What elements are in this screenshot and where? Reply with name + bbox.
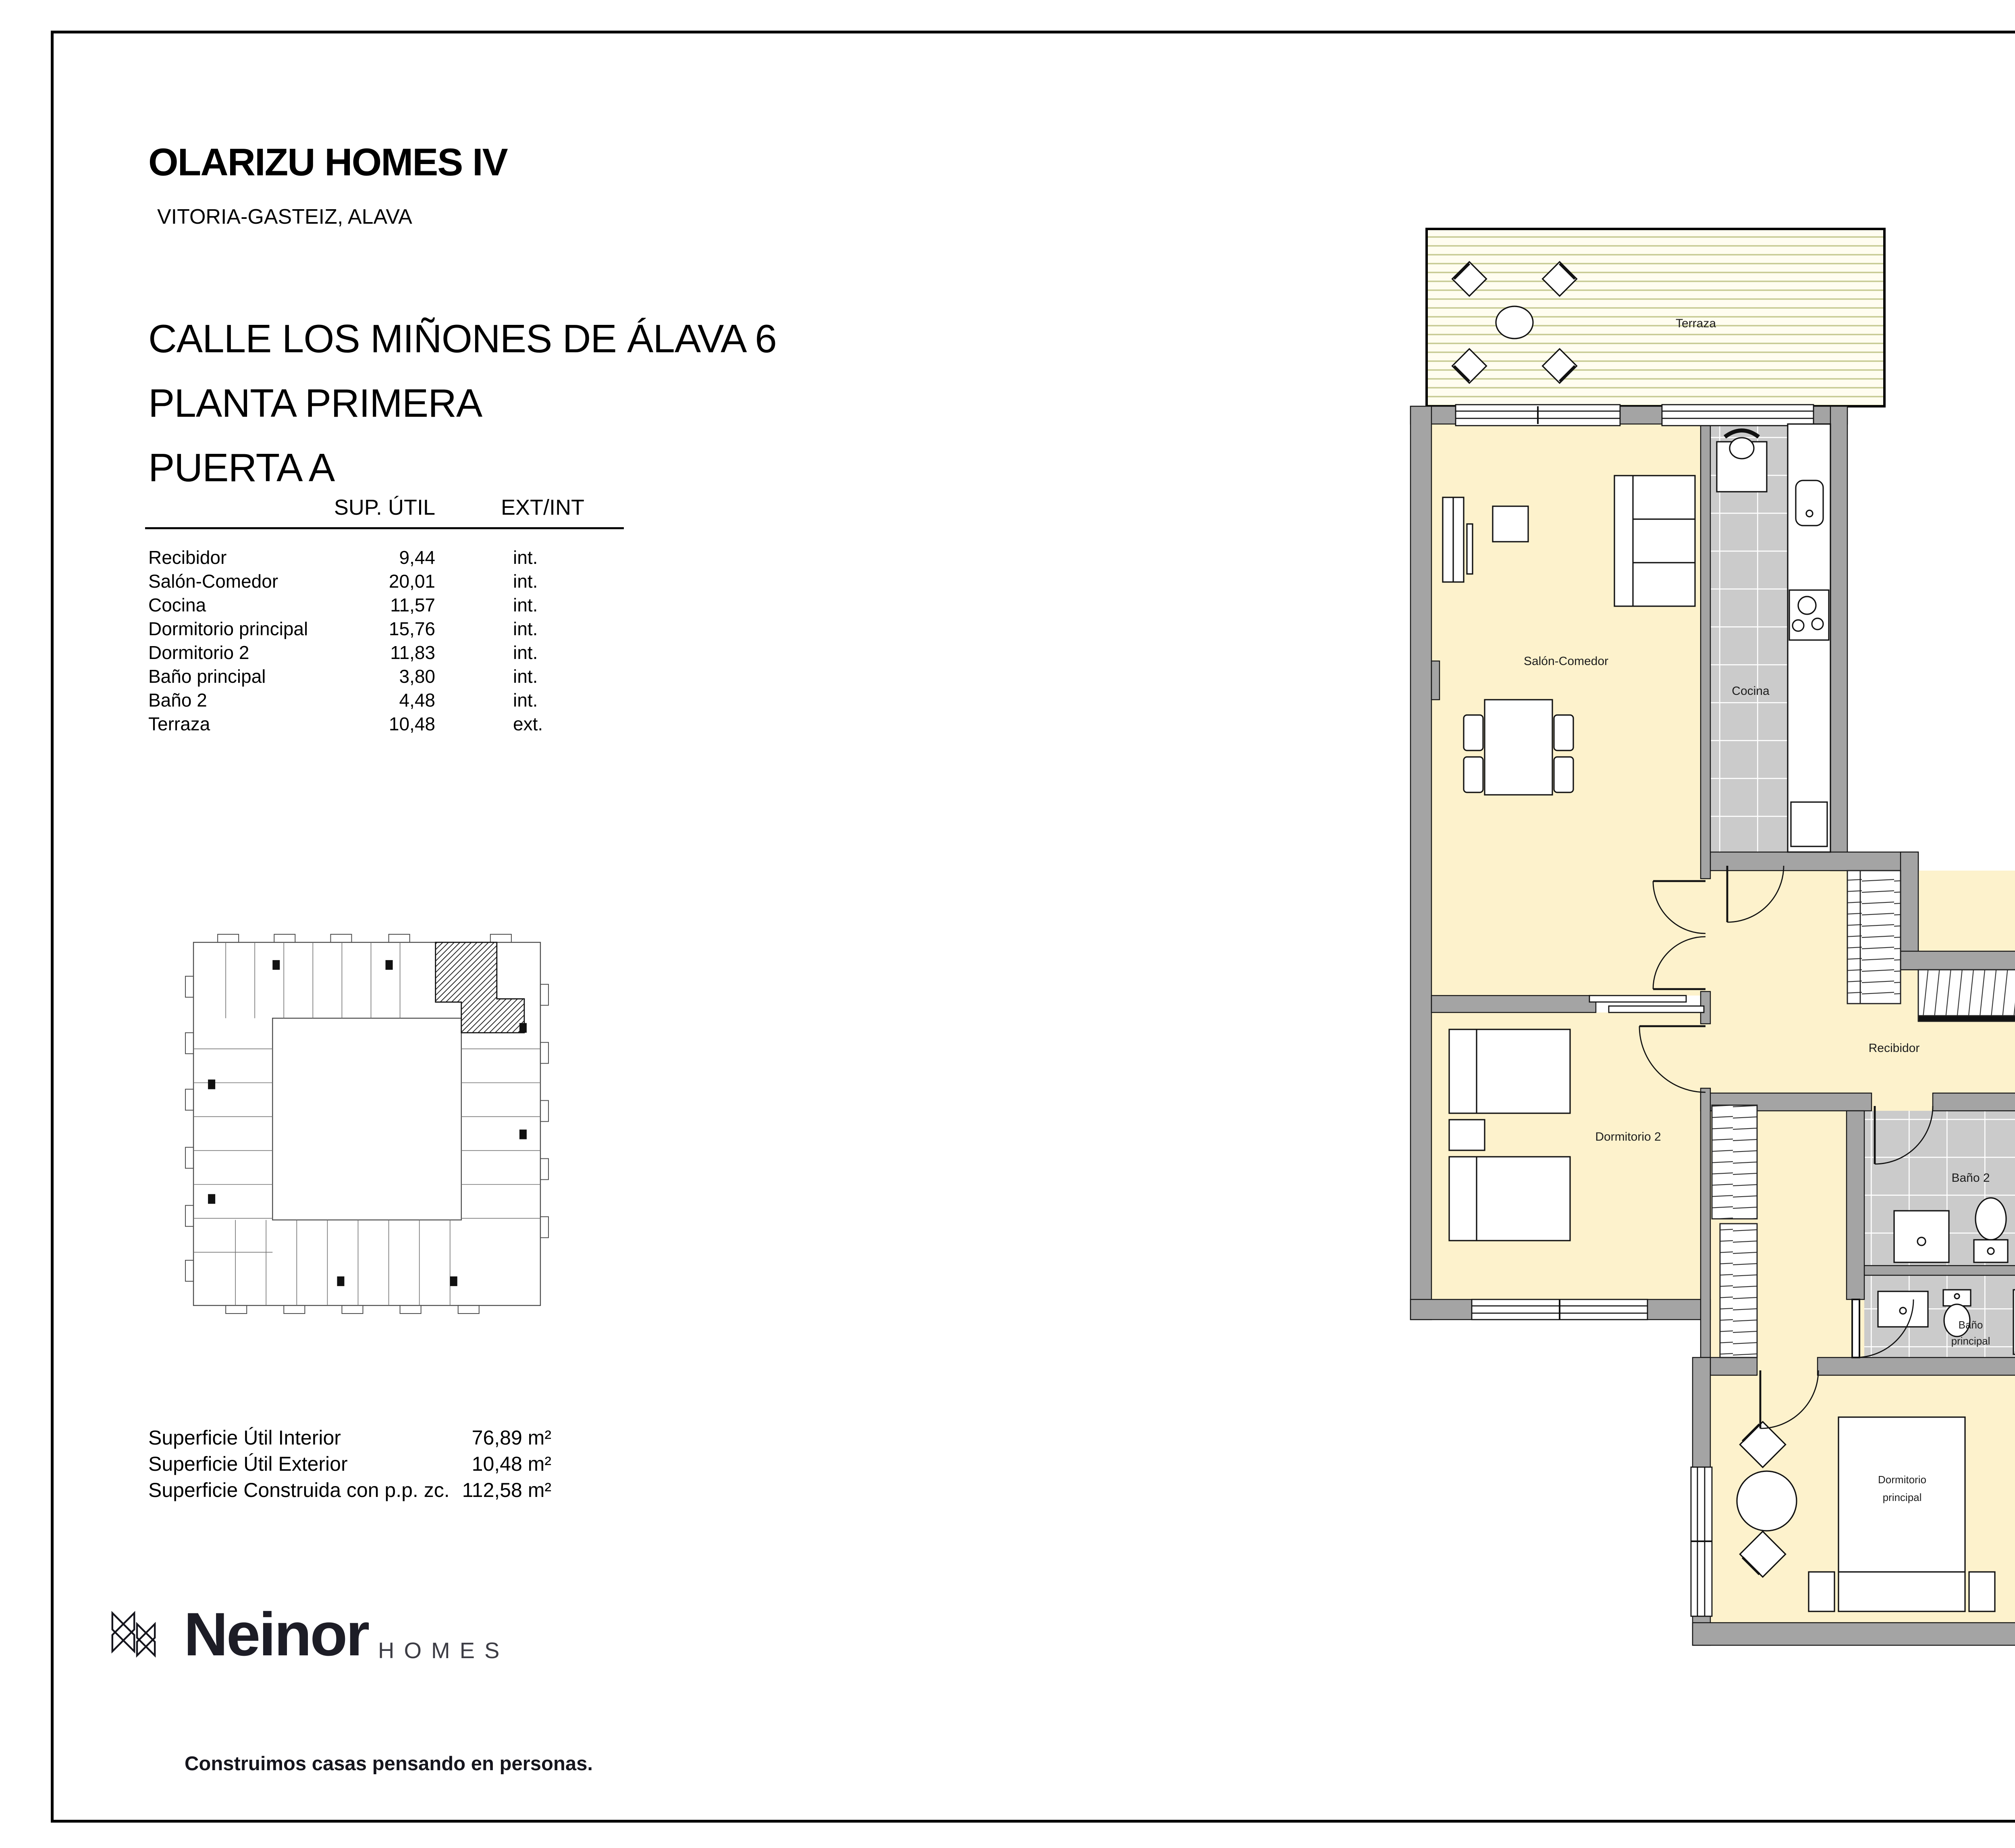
brand-tagline: Construimos casas pensando en personas.	[185, 1752, 593, 1775]
label-salon: Salón-Comedor	[1524, 655, 1608, 668]
table-rule	[145, 527, 624, 529]
project-title: OLARIZU HOMES IV	[148, 140, 507, 185]
dormp-nightstand	[1809, 1572, 1834, 1611]
label-dorm2: Dormitorio 2	[1595, 1130, 1661, 1143]
side-table	[1493, 506, 1528, 542]
brand-name: Neinor	[184, 1599, 368, 1670]
label-bano2: Baño 2	[1951, 1171, 1990, 1185]
totals-block: Superficie Útil Interior 76,89 m² Superf…	[148, 1426, 551, 1505]
sofa	[1614, 476, 1695, 606]
dormp-table	[1737, 1471, 1797, 1531]
banop-sink	[1878, 1291, 1928, 1327]
floor-plan: Terraza Salón-Comedor Cocina Recibidor D…	[1378, 210, 2015, 1693]
dorm2-bed	[1449, 1029, 1570, 1113]
label-dorm-principal: Dormitorio	[1878, 1474, 1926, 1486]
bano2-toilet	[1974, 1198, 2008, 1262]
key-plan	[177, 928, 557, 1333]
corridor-wardrobe	[1712, 1105, 1757, 1219]
total-row: Superficie Útil Interior 76,89 m²	[148, 1426, 551, 1452]
neinor-logo-icon	[110, 1606, 178, 1675]
corridor-wardrobe	[1720, 1224, 1757, 1357]
cocina-window	[1662, 405, 1813, 426]
key-plan-highlight	[436, 942, 524, 1033]
kitchen-oven	[1791, 802, 1827, 846]
dorm2-bed	[1449, 1157, 1570, 1241]
table-row: Baño 2 4,48 int.	[148, 689, 624, 713]
svg-text:principal: principal	[1951, 1335, 1990, 1347]
table-row: Dormitorio principal 15,76 int.	[148, 618, 624, 642]
shower	[2013, 1290, 2015, 1354]
terraza-area	[1427, 229, 1884, 406]
dormp-nightstand	[1969, 1572, 1995, 1611]
total-row: Superficie Útil Exterior 10,48 m²	[148, 1452, 551, 1478]
address-line-3: PUERTA A	[148, 435, 777, 500]
dorm2-sliding-door	[1589, 996, 1704, 1012]
label-bano-principal: Baño	[1959, 1319, 1983, 1331]
table-row: Cocina 11,57 int.	[148, 594, 624, 618]
brand-sub: HOMES	[378, 1637, 509, 1663]
dormp-bed	[1838, 1417, 1965, 1611]
recibidor-closet	[1847, 871, 1901, 1004]
col-header-ext-int: EXT/INT	[501, 495, 584, 520]
label-recibidor: Recibidor	[1869, 1041, 1920, 1055]
total-row: Superficie Construida con p.p. zc. 112,5…	[148, 1478, 551, 1505]
table-row: Dormitorio 2 11,83 int.	[148, 642, 624, 665]
dorm2-window	[1472, 1299, 1647, 1320]
address-line-1: CALLE LOS MIÑONES DE ÁLAVA 6	[148, 306, 777, 371]
dorm2-nightstand	[1449, 1120, 1485, 1150]
address-line-2: PLANTA PRIMERA	[148, 371, 777, 435]
kitchen-counter	[1788, 424, 1830, 852]
svg-text:principal: principal	[1883, 1491, 1922, 1503]
kitchen-hob	[1789, 590, 1829, 640]
table-row: Baño principal 3,80 int.	[148, 665, 624, 689]
address-block: CALLE LOS MIÑONES DE ÁLAVA 6 PLANTA PRIM…	[148, 306, 777, 500]
areas-table: Recibidor 9,44 int. Salón-Comedor 20,01 …	[148, 547, 624, 737]
table-row: Salón-Comedor 20,01 int.	[148, 570, 624, 594]
kitchen-sink	[1796, 480, 1823, 526]
dorm-principal-window	[1691, 1467, 1712, 1616]
label-cocina: Cocina	[1732, 684, 1770, 698]
terraza-table	[1496, 306, 1533, 339]
col-header-sup-util: SUP. ÚTIL	[334, 495, 435, 520]
label-terraza: Terraza	[1676, 317, 1716, 330]
salon-window	[1456, 405, 1620, 426]
project-location: VITORIA-GASTEIZ, ALAVA	[157, 205, 412, 229]
table-row: Terraza 10,48 ext.	[148, 713, 624, 737]
entry-coat-closet	[1918, 970, 2015, 1021]
bano2-sink	[1894, 1211, 1949, 1262]
table-row: Recibidor 9,44 int.	[148, 547, 624, 570]
